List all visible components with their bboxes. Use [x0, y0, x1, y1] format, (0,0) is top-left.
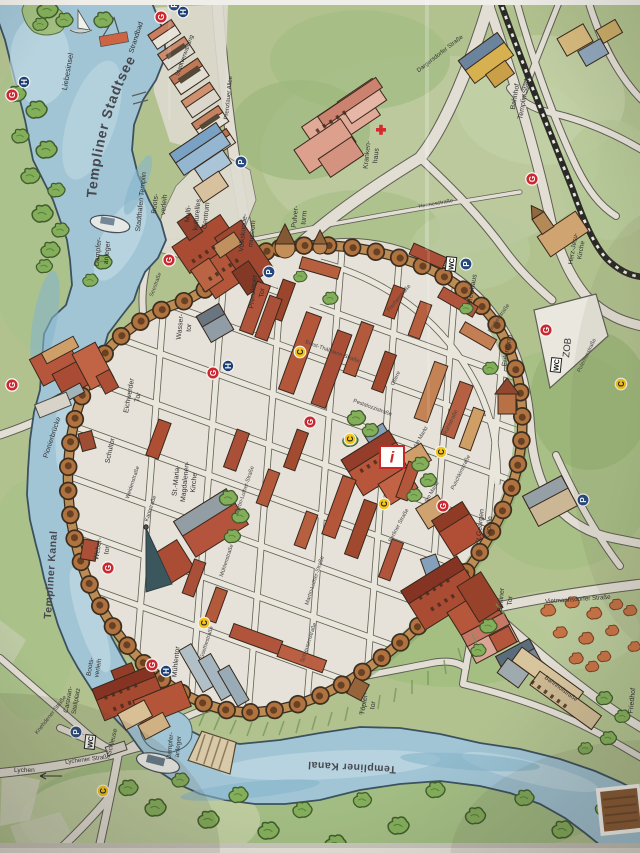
svg-text:G: G — [528, 176, 537, 182]
svg-text:i: i — [390, 450, 395, 467]
svg-text:G: G — [104, 565, 113, 571]
svg-text:C: C — [437, 449, 446, 455]
svg-text:P: P — [265, 269, 274, 275]
svg-text:H: H — [224, 363, 233, 369]
svg-text:H: H — [20, 79, 29, 85]
svg-text:G: G — [209, 370, 218, 376]
svg-text:H: H — [162, 668, 171, 674]
svg-text:WC: WC — [553, 359, 561, 371]
svg-text:C: C — [200, 620, 209, 626]
svg-text:G: G — [8, 382, 17, 388]
svg-text:C: C — [346, 436, 355, 442]
svg-text:C: C — [296, 349, 305, 355]
svg-text:G: G — [157, 14, 166, 20]
svg-text:WC: WC — [448, 258, 456, 270]
svg-text:G: G — [8, 92, 17, 98]
svg-text:G: G — [165, 257, 174, 263]
svg-text:P: P — [237, 159, 246, 165]
svg-text:G: G — [306, 419, 315, 425]
svg-text:G: G — [542, 327, 551, 333]
svg-text:P: P — [462, 261, 471, 267]
svg-text:G: G — [148, 662, 157, 668]
svg-text:C: C — [380, 501, 389, 507]
svg-text:H: H — [179, 9, 188, 15]
svg-text:G: G — [439, 503, 448, 509]
